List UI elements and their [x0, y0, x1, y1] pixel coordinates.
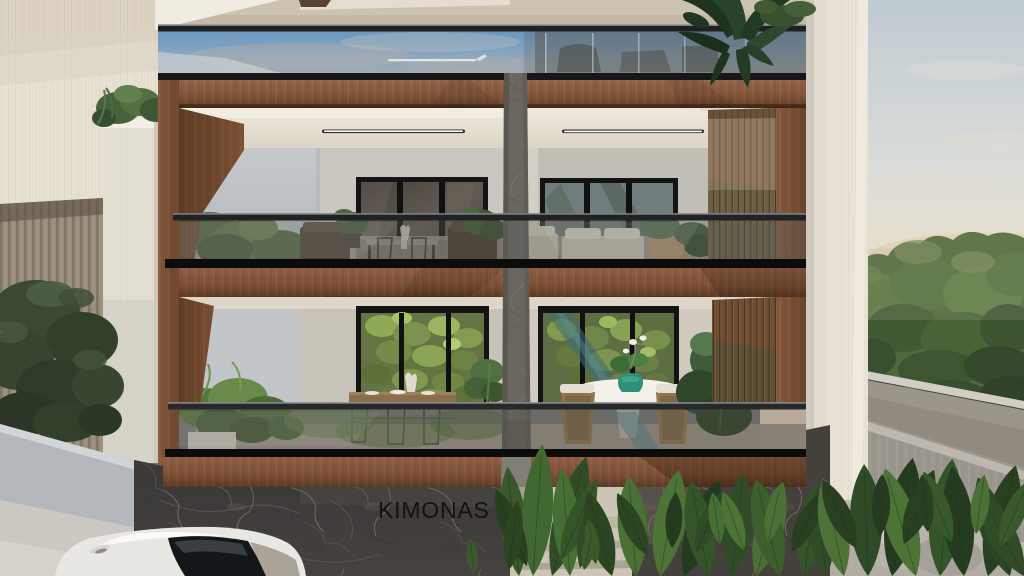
svg-text:KIMONAS 5: KIMONAS 5 — [378, 497, 510, 523]
